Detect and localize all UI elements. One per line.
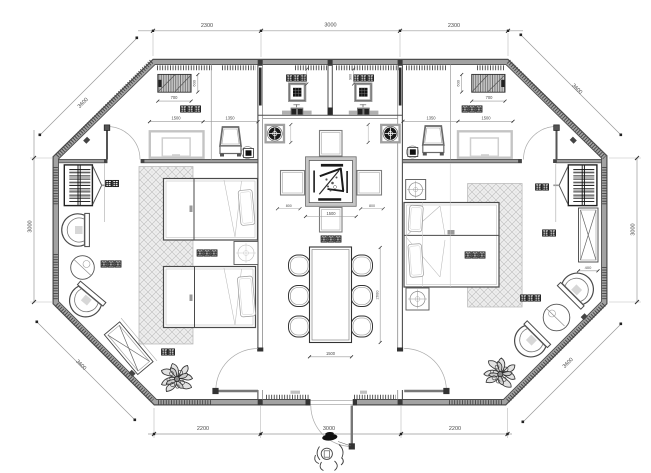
svg-text:1500: 1500	[481, 115, 491, 120]
svg-text:3000: 3000	[324, 23, 336, 29]
svg-text:900: 900	[349, 74, 353, 80]
svg-text:2200: 2200	[449, 426, 461, 432]
svg-text:1350: 1350	[225, 116, 235, 121]
svg-text:3000: 3000	[28, 220, 34, 232]
svg-text:2300: 2300	[448, 23, 460, 29]
svg-text:600: 600	[456, 79, 461, 86]
svg-text:3000: 3000	[631, 223, 637, 235]
svg-text:1500: 1500	[171, 116, 181, 121]
svg-text:700: 700	[486, 95, 494, 100]
svg-text:400: 400	[585, 265, 592, 270]
svg-text:600: 600	[192, 79, 197, 86]
svg-text:800: 800	[369, 204, 375, 208]
svg-text:2300: 2300	[201, 23, 213, 29]
svg-text:1500: 1500	[326, 211, 336, 216]
svg-text:3000: 3000	[323, 426, 335, 432]
svg-text:900: 900	[302, 74, 306, 80]
svg-text:1350: 1350	[426, 115, 436, 120]
svg-text:2200: 2200	[197, 426, 209, 432]
svg-text:2600: 2600	[374, 290, 379, 300]
svg-text:800: 800	[286, 204, 292, 208]
svg-text:700: 700	[171, 95, 179, 100]
svg-text:1500: 1500	[326, 351, 336, 356]
